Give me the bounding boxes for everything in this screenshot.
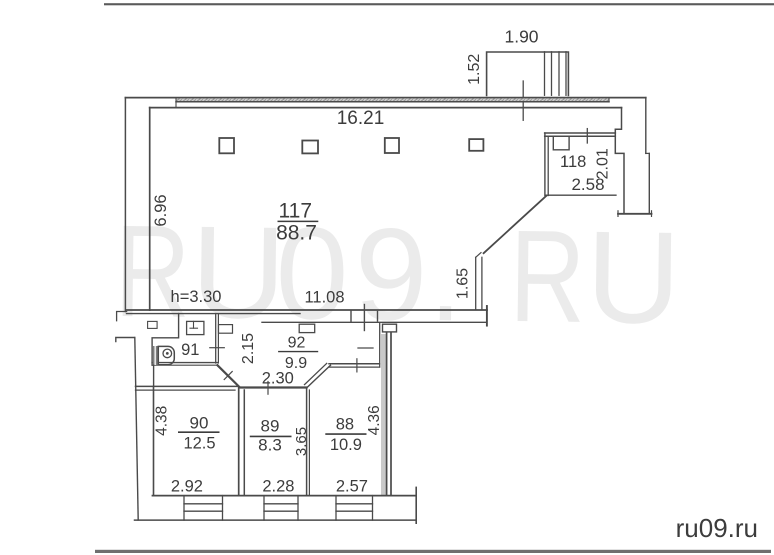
svg-text:4.36: 4.36: [366, 405, 383, 435]
svg-text:11.08: 11.08: [304, 289, 344, 307]
svg-text:h=3.30: h=3.30: [171, 288, 222, 306]
svg-text:3.65: 3.65: [293, 427, 310, 456]
svg-text:1.65: 1.65: [455, 268, 472, 299]
svg-text:2.01: 2.01: [595, 148, 612, 179]
svg-text:90: 90: [190, 414, 209, 433]
svg-text:2.57: 2.57: [336, 477, 368, 495]
svg-text:6.96: 6.96: [152, 194, 170, 226]
svg-text:16.21: 16.21: [337, 108, 385, 129]
svg-text:2.30: 2.30: [262, 369, 294, 387]
svg-text:88: 88: [336, 415, 354, 433]
svg-text:1.52: 1.52: [466, 54, 483, 85]
svg-text:117: 117: [279, 200, 312, 223]
svg-text:89: 89: [261, 416, 280, 435]
svg-text:8.3: 8.3: [258, 435, 282, 454]
svg-text:92: 92: [288, 334, 306, 351]
svg-text:2.92: 2.92: [171, 477, 203, 495]
svg-text:U: U: [190, 198, 286, 346]
svg-text:4.38: 4.38: [154, 406, 171, 436]
svg-text:2.15: 2.15: [240, 333, 257, 364]
svg-text:U: U: [585, 203, 681, 351]
svg-text:88.7: 88.7: [276, 222, 317, 245]
svg-text:118: 118: [560, 153, 586, 171]
svg-text:12.5: 12.5: [183, 434, 215, 452]
svg-text:2.28: 2.28: [262, 477, 294, 495]
svg-text:91: 91: [181, 341, 199, 359]
svg-text:ru09.ru: ru09.ru: [676, 513, 758, 543]
svg-text:R: R: [509, 204, 587, 351]
svg-text:1.90: 1.90: [504, 27, 538, 47]
svg-text:10.9: 10.9: [330, 436, 362, 454]
